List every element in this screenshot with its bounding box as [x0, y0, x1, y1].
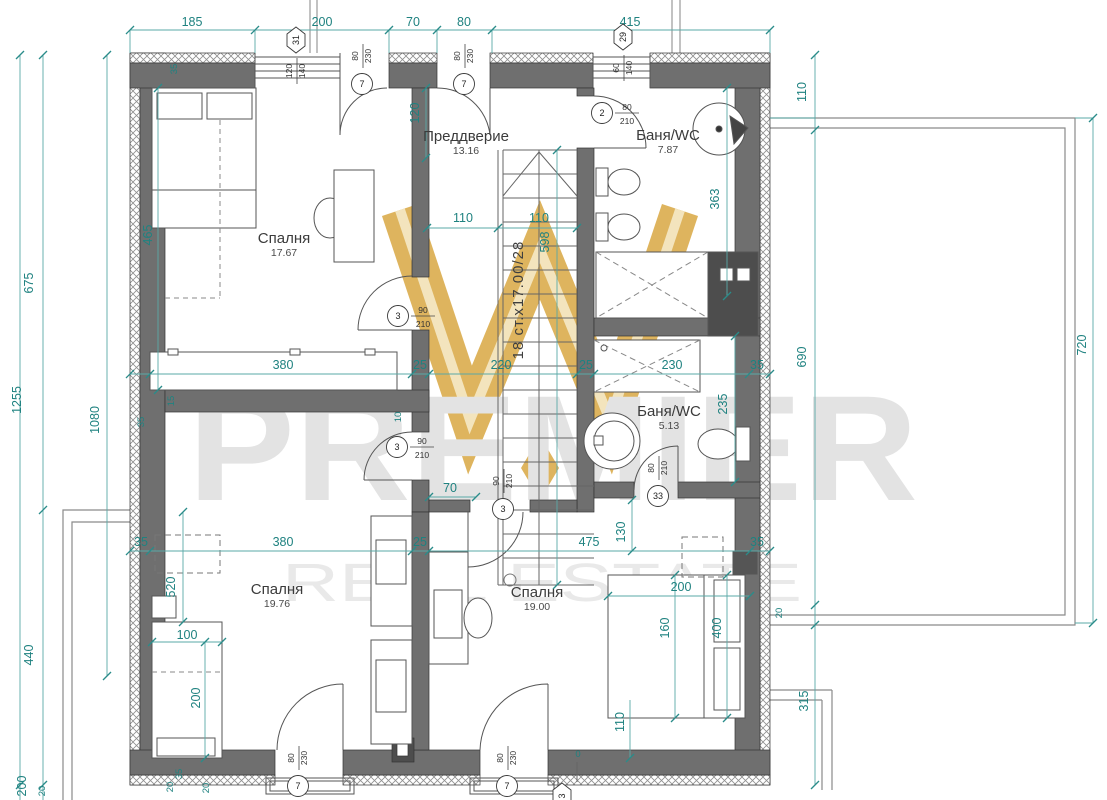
window-marker-number: 29	[618, 32, 628, 42]
dim-label: 465	[141, 225, 155, 246]
door-size-width: 80	[286, 753, 296, 763]
dim-label: 520	[164, 577, 178, 598]
door-size-height: 210	[416, 319, 430, 329]
room-area-label: 7.87	[658, 144, 679, 156]
dim-label: 110	[795, 82, 809, 102]
dim-label: 185	[182, 15, 203, 29]
dim-label: 35	[750, 535, 764, 549]
wall-top	[130, 63, 255, 88]
dim-label: 25	[413, 535, 427, 549]
pillow	[157, 738, 215, 756]
wall-bedroom19-top-left	[429, 500, 470, 512]
dim-label: 100	[177, 628, 198, 642]
dim-label: 20	[37, 786, 48, 797]
door-size-height: 230	[299, 751, 309, 765]
wall-hatch-right	[760, 53, 770, 785]
dim-label: 200	[671, 580, 692, 594]
door-size-height: 230	[508, 751, 518, 765]
dim-label: 15	[166, 396, 177, 407]
door-size-width: 80	[495, 753, 505, 763]
dim-label: 230	[662, 358, 683, 372]
door-marker-number: 7	[504, 781, 509, 791]
room-area-label: 5.13	[659, 420, 680, 432]
dim-label: 70	[443, 481, 457, 495]
dim-label: 475	[579, 535, 600, 549]
room-name-label: Баня/WC	[636, 127, 700, 144]
porch-right-outline	[760, 690, 832, 790]
desk-1	[334, 170, 374, 262]
door-marker-number: 7	[461, 79, 466, 89]
stairs-count-label: 18 ст.х17.00/28	[510, 241, 527, 360]
window-size-width: 120	[284, 64, 294, 78]
terrace-left-outline	[63, 510, 130, 800]
dim-label: 400	[710, 618, 724, 639]
dim-label: 35	[134, 535, 148, 549]
door-bottom-2	[480, 684, 548, 750]
dim-label: 598	[538, 232, 552, 253]
flue-block	[708, 252, 758, 336]
dim-label: 0	[575, 749, 580, 760]
dim-label: 110	[453, 211, 473, 225]
radiator	[733, 552, 757, 574]
threshold-1	[266, 778, 354, 794]
window-29	[593, 53, 650, 88]
wall-bath-south-left	[594, 482, 634, 498]
dim-label: 35	[169, 64, 180, 75]
door-size-width: 90	[417, 436, 427, 446]
door-size-width: 80	[622, 102, 632, 112]
dim-label: 315	[797, 691, 811, 712]
wall-hatch-top	[130, 53, 255, 63]
dim-label: 70	[406, 15, 420, 29]
door-marker-number: 7	[359, 79, 364, 89]
dim-label: 675	[22, 273, 36, 294]
chair-2	[464, 598, 492, 638]
stairs-winder-lines	[503, 150, 577, 196]
room-area-label: 19.00	[524, 601, 550, 613]
dim-label: 160	[658, 618, 672, 639]
toilet-1	[608, 169, 640, 195]
dim-label: 20	[165, 782, 176, 793]
dim-label: 220	[491, 358, 512, 372]
dim-label: 200	[15, 776, 29, 797]
door-size-width: 80	[452, 51, 462, 61]
dim-label: 440	[22, 645, 36, 666]
dim-label: 10	[393, 412, 404, 423]
door-marker-number: 3	[394, 442, 399, 452]
dim-label: 35	[750, 358, 764, 372]
window-size-height: 140	[624, 61, 634, 75]
door-size-width: 90	[418, 305, 428, 315]
window-marker-number: 31	[291, 35, 301, 45]
door-size-height: 210	[620, 116, 634, 126]
room-area-label: 13.16	[453, 145, 479, 157]
wc-tank	[596, 168, 608, 196]
pillow	[157, 93, 202, 119]
dim-label: 110	[529, 211, 549, 225]
room-area-label: 19.76	[264, 598, 290, 610]
door-size-width: 80	[646, 463, 656, 473]
wall-bath-south-right	[678, 482, 760, 498]
dim-label: 130	[614, 522, 628, 543]
dim-label: 35	[174, 769, 185, 780]
stairs-label: 18 ст.х17.00/28	[510, 241, 527, 360]
door-size-width: 90	[491, 476, 501, 486]
wc-tank	[596, 213, 608, 241]
door-marker-number: 2	[599, 108, 604, 118]
dim-label: 200	[312, 15, 333, 29]
door-bottom-1	[277, 684, 343, 750]
door-marker-number: 7	[295, 781, 300, 791]
floor-plan-drawing: PREMIER REAL ESTATE	[0, 0, 1107, 800]
dim-label: 363	[708, 189, 722, 210]
dim-label: 380	[273, 535, 294, 549]
room-name-label: Спалня	[258, 230, 310, 247]
dim-label: 25	[579, 358, 593, 372]
door-size-height: 230	[363, 49, 373, 63]
door-size-height: 230	[465, 49, 475, 63]
dim-label: 720	[1075, 335, 1089, 356]
door-marker-number: 33	[653, 491, 663, 501]
door-marker-number: 3	[395, 311, 400, 321]
window-marker-number: 3	[557, 793, 567, 798]
dim-label: 200	[189, 688, 203, 709]
room-name-label: Преддверие	[423, 128, 509, 145]
door-marker-number: 3	[500, 504, 505, 514]
door-size-width: 80	[350, 51, 360, 61]
dim-label: 690	[795, 347, 809, 368]
wall-bedroom-corridor	[165, 390, 429, 412]
floorplan-page: PREMIER REAL ESTATE	[0, 0, 1107, 800]
dim-label: 380	[273, 358, 294, 372]
dim-label: 35	[136, 417, 147, 428]
door-size-height: 210	[504, 474, 514, 488]
wc-tank	[736, 427, 750, 461]
dim-label: 1080	[88, 406, 102, 434]
toilet-2	[608, 214, 640, 240]
dim-label: 120	[408, 103, 422, 124]
nightstand	[152, 596, 176, 618]
door-size-height: 210	[415, 450, 429, 460]
pillow	[207, 93, 252, 119]
dim-label: 110	[613, 712, 627, 732]
dim-label: 1255	[10, 386, 24, 414]
window-size-width: 60	[611, 63, 621, 73]
door-size-height: 210	[659, 461, 669, 475]
dim-label: 25	[413, 358, 427, 372]
room-area-label: 17.67	[271, 247, 297, 259]
dim-label: 80	[457, 15, 471, 29]
room-name-label: Баня/WC	[637, 403, 701, 420]
dim-label: 235	[716, 394, 730, 415]
room-name-label: Спалня	[511, 584, 563, 601]
dim-label: 20	[201, 783, 212, 794]
room-name-label: Спалня	[251, 581, 303, 598]
toilet-3	[698, 429, 738, 459]
dim-label: 20	[774, 608, 785, 619]
window-size-height: 140	[297, 64, 307, 78]
door-top-1	[340, 88, 387, 135]
